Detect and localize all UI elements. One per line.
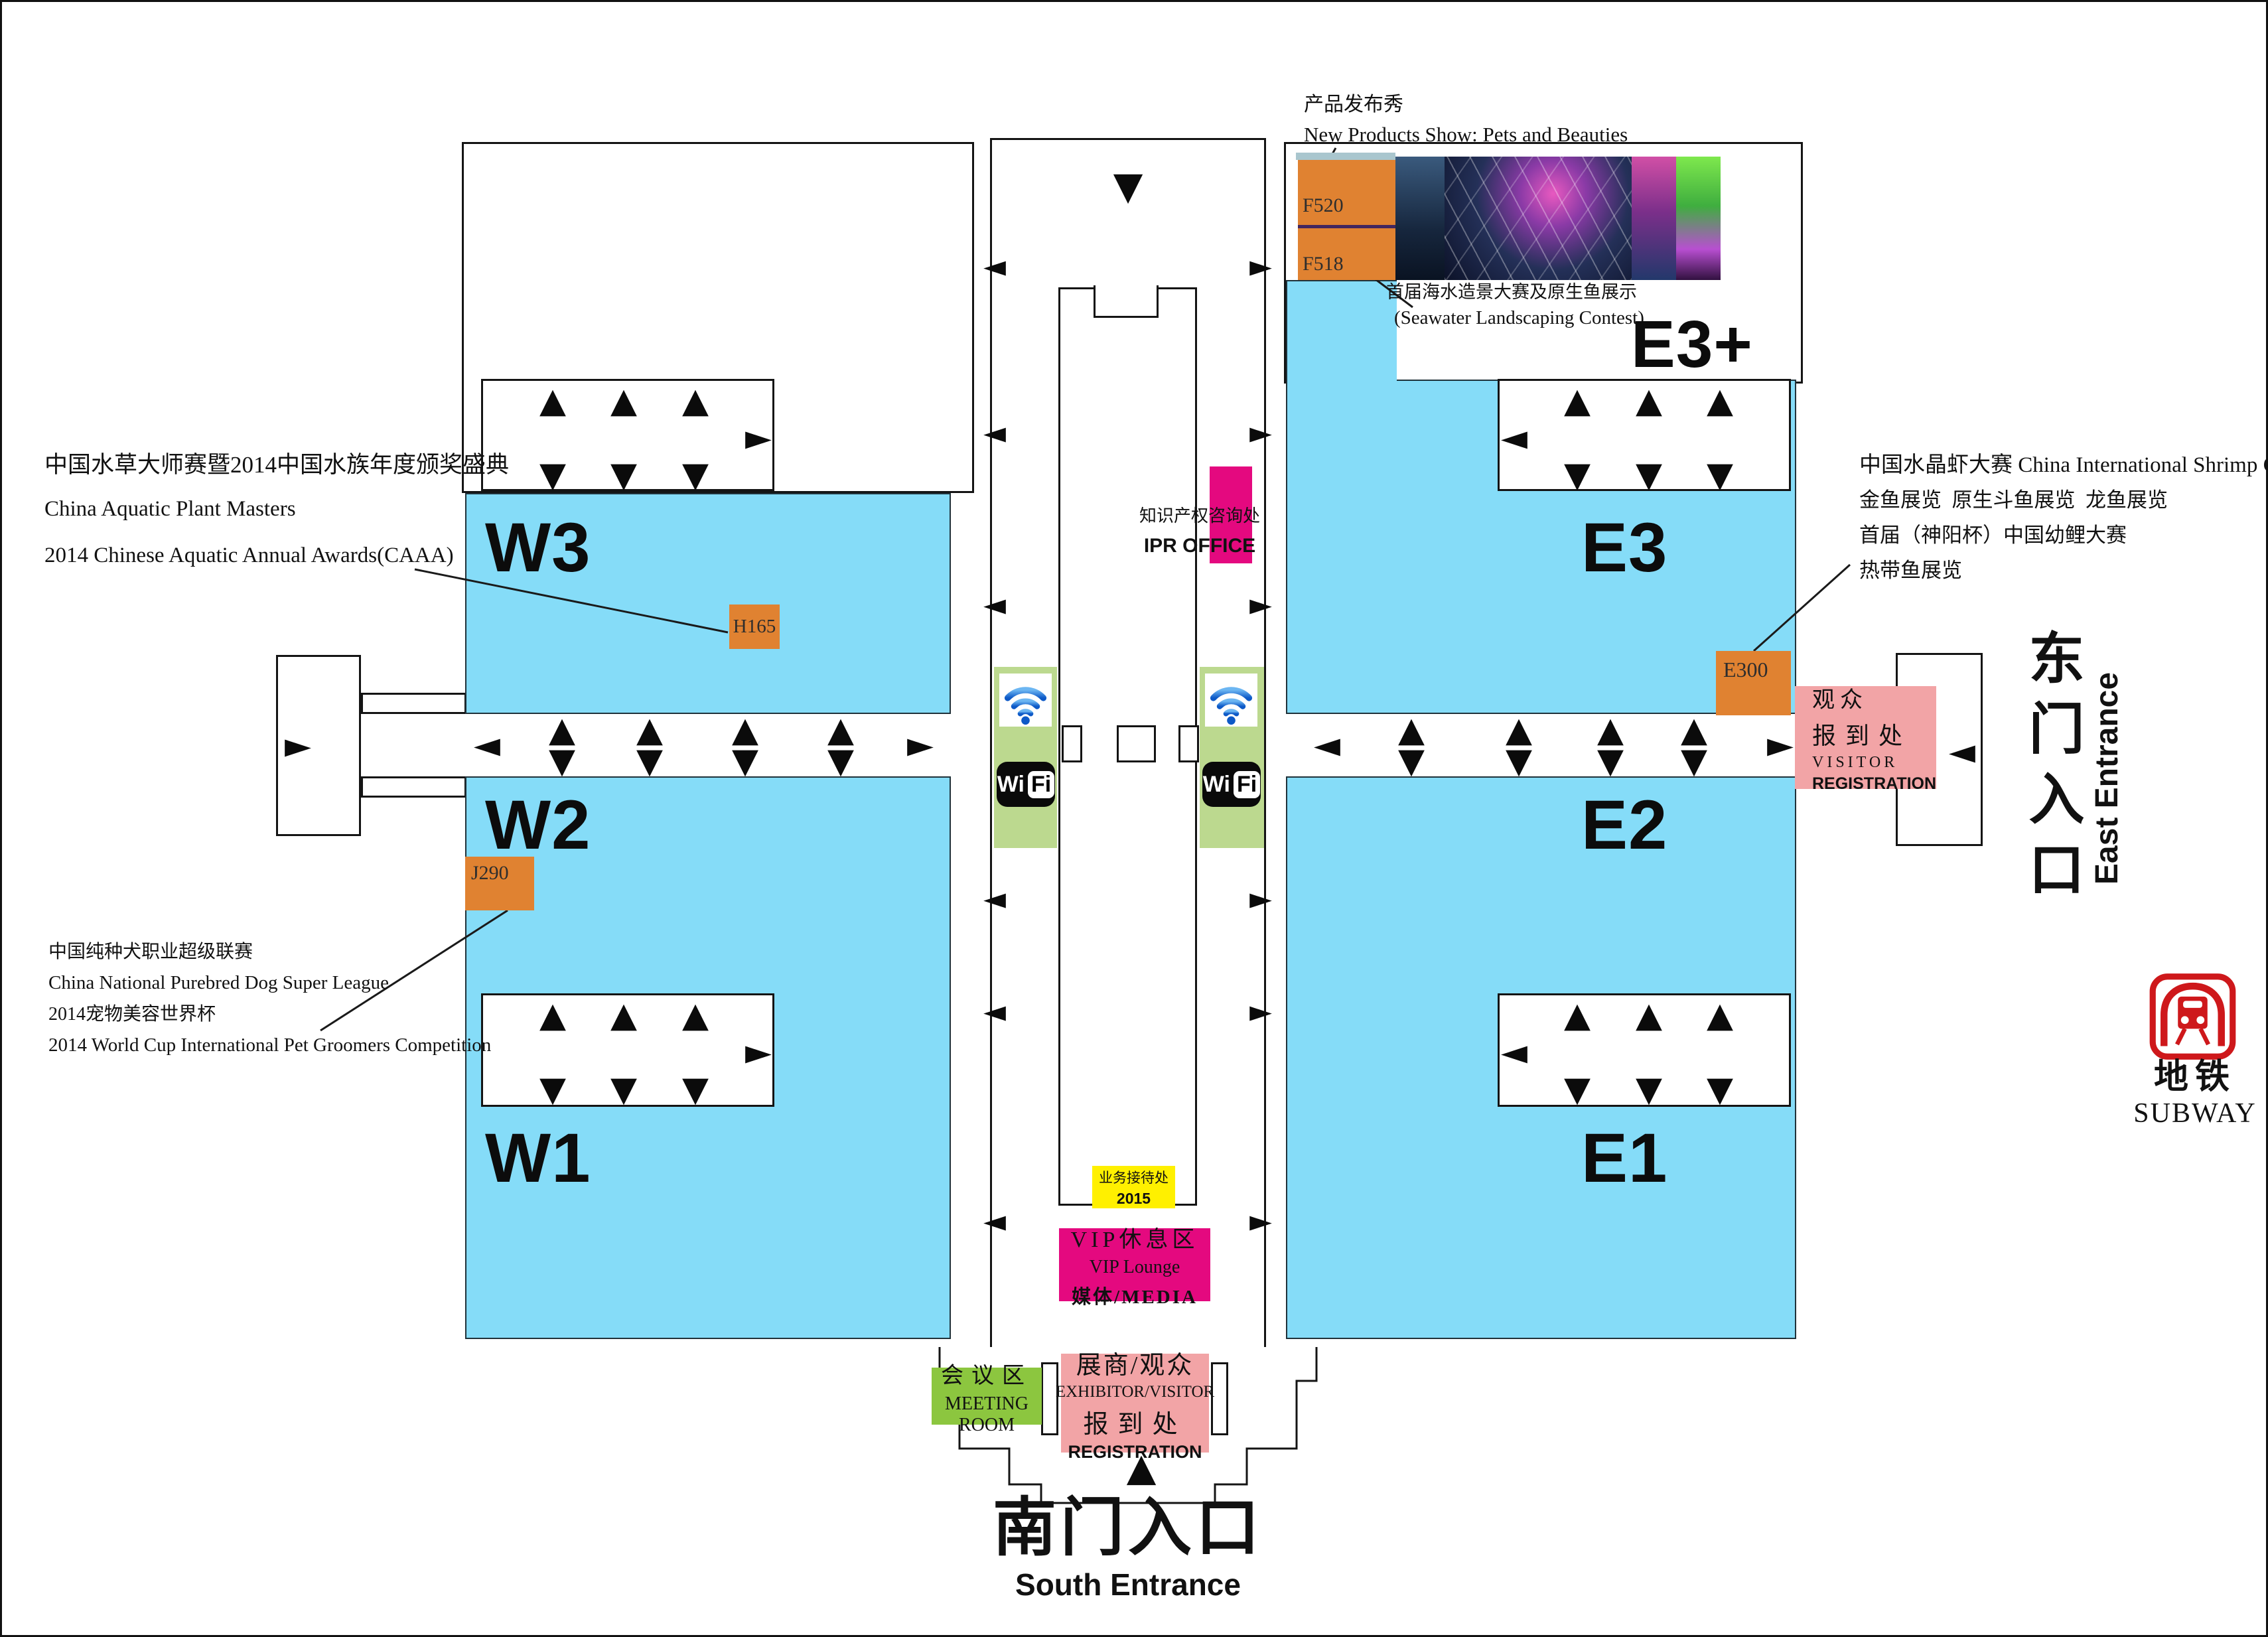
arrow-right-icon: ► — [907, 728, 934, 762]
photo-tile — [1632, 157, 1676, 280]
meeting-zh: 会议区 — [941, 1357, 1032, 1389]
arrow-down-icon: ▼ — [1636, 458, 1662, 492]
arrow-down-icon: ▼ — [682, 458, 709, 492]
exhibition-floor-plan: WiFi WiFi F520 F518 H165 J290 E300 知识产权咨… — [0, 0, 2268, 1637]
visitor-registration-box: 观众 报到处 VISITOR REGISTRATION — [1795, 686, 1936, 789]
hall-label-e1: E1 — [1581, 1123, 1667, 1193]
stage-photo-collage — [1395, 157, 1721, 280]
arrow-up-icon: ▲ — [1636, 384, 1662, 418]
hall-label-w2: W2 — [485, 790, 591, 860]
arrow-right-icon: ► — [1249, 252, 1272, 281]
arrow-right-icon: ► — [1249, 997, 1272, 1027]
leader-line-j290 — [320, 910, 508, 1031]
arrow-left-icon: ◄ — [983, 591, 1006, 620]
arrow-down-icon: ▼ — [1564, 458, 1591, 492]
vip-media: 媒体/MEDIA — [1072, 1281, 1198, 1309]
arrow-down-icon: ▼ — [1506, 744, 1532, 778]
booth-e300-label: E300 — [1723, 658, 1768, 682]
arrow-right-icon: ► — [745, 421, 772, 455]
arrow-left-icon: ◄ — [1314, 728, 1340, 762]
arrow-left-icon: ◄ — [1949, 735, 1975, 769]
seawater-zh: 首届海水造景大赛及原生鱼展示 — [1386, 283, 1637, 301]
aquatic-note-zh: 中国水草大师赛暨2014中国水族年度颁奖盛典 — [44, 453, 509, 476]
ipr-en: IPR OFFICE — [1144, 535, 1255, 557]
arrow-left-icon: ◄ — [983, 419, 1006, 448]
aquatic-note-en2: 2014 Chinese Aquatic Annual Awards(CAAA) — [44, 545, 454, 567]
arrow-right-icon: ► — [1767, 728, 1794, 762]
dog-note-zh2: 2014宠物美容世界杯 — [48, 1005, 216, 1024]
arrow-down-icon: ▼ — [610, 1072, 637, 1107]
shrimp-note-line4: 热带鱼展览 — [1859, 560, 1962, 581]
arrow-right-icon: ► — [285, 729, 311, 763]
arrow-down-icon: ▼ — [1564, 1072, 1591, 1107]
visitor-reg-en2: REGISTRATION — [1812, 774, 1936, 794]
photo-tile — [1445, 157, 1632, 280]
arrow-left-icon: ◄ — [983, 252, 1006, 281]
arrow-left-icon: ◄ — [983, 1207, 1006, 1236]
service-desk-zh: 业务接待处 — [1099, 1167, 1169, 1187]
photo-tile — [1676, 157, 1721, 280]
product-show-zh: 产品发布秀 — [1304, 95, 1403, 115]
arrow-up-icon: ▲ — [1707, 384, 1733, 418]
photo-tile — [1395, 157, 1445, 280]
arrow-up-icon: ▲ — [682, 384, 709, 418]
arrow-down-icon: ▼ — [732, 744, 758, 778]
arrow-up-icon: ▲ — [1636, 998, 1662, 1032]
arrow-up-icon: ▲ — [610, 998, 637, 1032]
vip-lounge-box: VIP休息区 VIP Lounge 媒体/MEDIA — [1059, 1228, 1210, 1301]
arrow-down-icon: ▼ — [1398, 744, 1425, 778]
shrimp-note-line1: 中国水晶虾大赛 China International Shrimp Conte… — [1859, 455, 2268, 476]
booth-h165-label: H165 — [733, 616, 776, 638]
arrow-down-icon: ▼ — [1707, 458, 1733, 492]
hall-label-e3-plus: E3+ — [1631, 311, 1753, 378]
arrow-up-icon: ▲ — [1707, 998, 1733, 1032]
meeting-en: MEETING ROOM — [932, 1393, 1042, 1436]
service-desk-year: 2015 — [1117, 1190, 1151, 1208]
arrow-down-icon: ▼ — [1707, 1072, 1733, 1107]
leader-line-e300 — [1754, 565, 1850, 651]
arrow-down-icon: ▼ — [1681, 744, 1707, 778]
hall-label-w3: W3 — [485, 513, 591, 583]
seawater-en: (Seawater Landscaping Contest) — [1394, 309, 1644, 328]
arrow-right-icon: ► — [1249, 885, 1272, 914]
visitor-reg-zh1: 观众 — [1812, 681, 1868, 714]
ipr-office-label: 知识产权咨询处 IPR OFFICE — [1123, 493, 1276, 566]
meeting-room-box: 会议区 MEETING ROOM — [932, 1368, 1042, 1425]
booth-e300: E300 — [1716, 651, 1791, 715]
subway-zh: 地铁 — [2142, 1060, 2248, 1094]
shrimp-note-line3: 首届（神阳杯）中国幼鲤大赛 — [1859, 525, 2127, 545]
booth-f520-label: F520 — [1303, 196, 1344, 216]
dog-note-en2: 2014 World Cup International Pet Groomer… — [48, 1036, 491, 1055]
arrow-down-icon: ▼ — [827, 744, 854, 778]
arrow-down-icon: ▼ — [1113, 167, 1143, 205]
south-entrance-zh: 南门入口 — [936, 1496, 1320, 1560]
arrow-down-icon: ▼ — [1636, 1072, 1662, 1107]
booth-h165: H165 — [729, 605, 780, 649]
arrow-up-icon: ▲ — [682, 998, 709, 1032]
shrimp-note-line2: 金鱼展览 原生斗鱼展览 龙鱼展览 — [1859, 490, 2168, 510]
arrow-right-icon: ► — [1249, 419, 1272, 448]
exhibitor-reg-zh2: 报到处 — [1083, 1403, 1186, 1440]
arrow-down-icon: ▼ — [549, 744, 575, 778]
ipr-zh: 知识产权咨询处 — [1139, 502, 1260, 527]
arrow-right-icon: ► — [1249, 591, 1272, 620]
arrow-down-icon: ▼ — [636, 744, 663, 778]
exhibitor-reg-en1: EXHIBITOR/VISITOR — [1056, 1383, 1214, 1401]
arrow-down-icon: ▼ — [539, 1072, 566, 1107]
vip-zh: VIP休息区 — [1071, 1221, 1199, 1253]
hall-label-e2: E2 — [1581, 790, 1667, 860]
booth-f518-label: F518 — [1303, 254, 1344, 274]
exhibitor-registration-box: 展商/观众 EXHIBITOR/VISITOR 报到处 REGISTRATION — [1061, 1354, 1209, 1453]
arrow-down-icon: ▼ — [1597, 744, 1624, 778]
dog-note-en1: China National Purebred Dog Super League — [48, 973, 389, 993]
arrow-right-icon: ► — [745, 1035, 772, 1070]
product-show-en: New Products Show: Pets and Beauties — [1304, 124, 1628, 145]
arrow-up-icon: ▲ — [1564, 384, 1591, 418]
arrow-up-icon: ▲ — [1564, 998, 1591, 1032]
arrow-left-icon: ◄ — [983, 885, 1006, 914]
hall-label-e3: E3 — [1581, 513, 1667, 583]
visitor-reg-zh2: 报到处 — [1812, 717, 1912, 751]
arrow-down-icon: ▼ — [610, 458, 637, 492]
arrow-up-icon: ▲ — [610, 384, 637, 418]
booth-j290-label: J290 — [471, 862, 509, 885]
arrow-down-icon: ▼ — [539, 458, 566, 492]
roof-strip — [1296, 153, 1395, 160]
arrow-left-icon: ◄ — [474, 728, 500, 762]
exhibitor-reg-zh1: 展商/观众 — [1076, 1344, 1194, 1381]
arrow-up-icon: ▲ — [1127, 1448, 1157, 1486]
south-entrance-en: South Entrance — [936, 1569, 1320, 1600]
arrow-left-icon: ◄ — [1501, 421, 1527, 455]
east-entrance-zh: 东门入口 — [2024, 629, 2080, 910]
vip-en: VIP Lounge — [1090, 1257, 1180, 1278]
arrow-up-icon: ▲ — [539, 998, 566, 1032]
arrow-left-icon: ◄ — [983, 997, 1006, 1027]
subway-en: SUBWAY — [2129, 1100, 2261, 1127]
east-entrance-en: East Entrance — [2090, 639, 2125, 918]
arrow-up-icon: ▲ — [539, 384, 566, 418]
arrow-left-icon: ◄ — [1501, 1035, 1527, 1070]
visitor-reg-en1: VISITOR — [1812, 754, 1898, 772]
south-entrance-label: 南门入口 South Entrance — [936, 1496, 1320, 1600]
arrow-down-icon: ▼ — [682, 1072, 709, 1107]
dog-note-zh1: 中国纯种犬职业超级联赛 — [48, 943, 253, 961]
service-desk-box: 业务接待处 2015 — [1092, 1166, 1175, 1208]
aquatic-note-en1: China Aquatic Plant Masters — [44, 498, 296, 520]
subway-icon — [2149, 973, 2236, 1060]
hall-label-w1: W1 — [485, 1123, 591, 1193]
arrow-right-icon: ► — [1249, 1207, 1272, 1236]
booth-j290: J290 — [465, 857, 534, 910]
